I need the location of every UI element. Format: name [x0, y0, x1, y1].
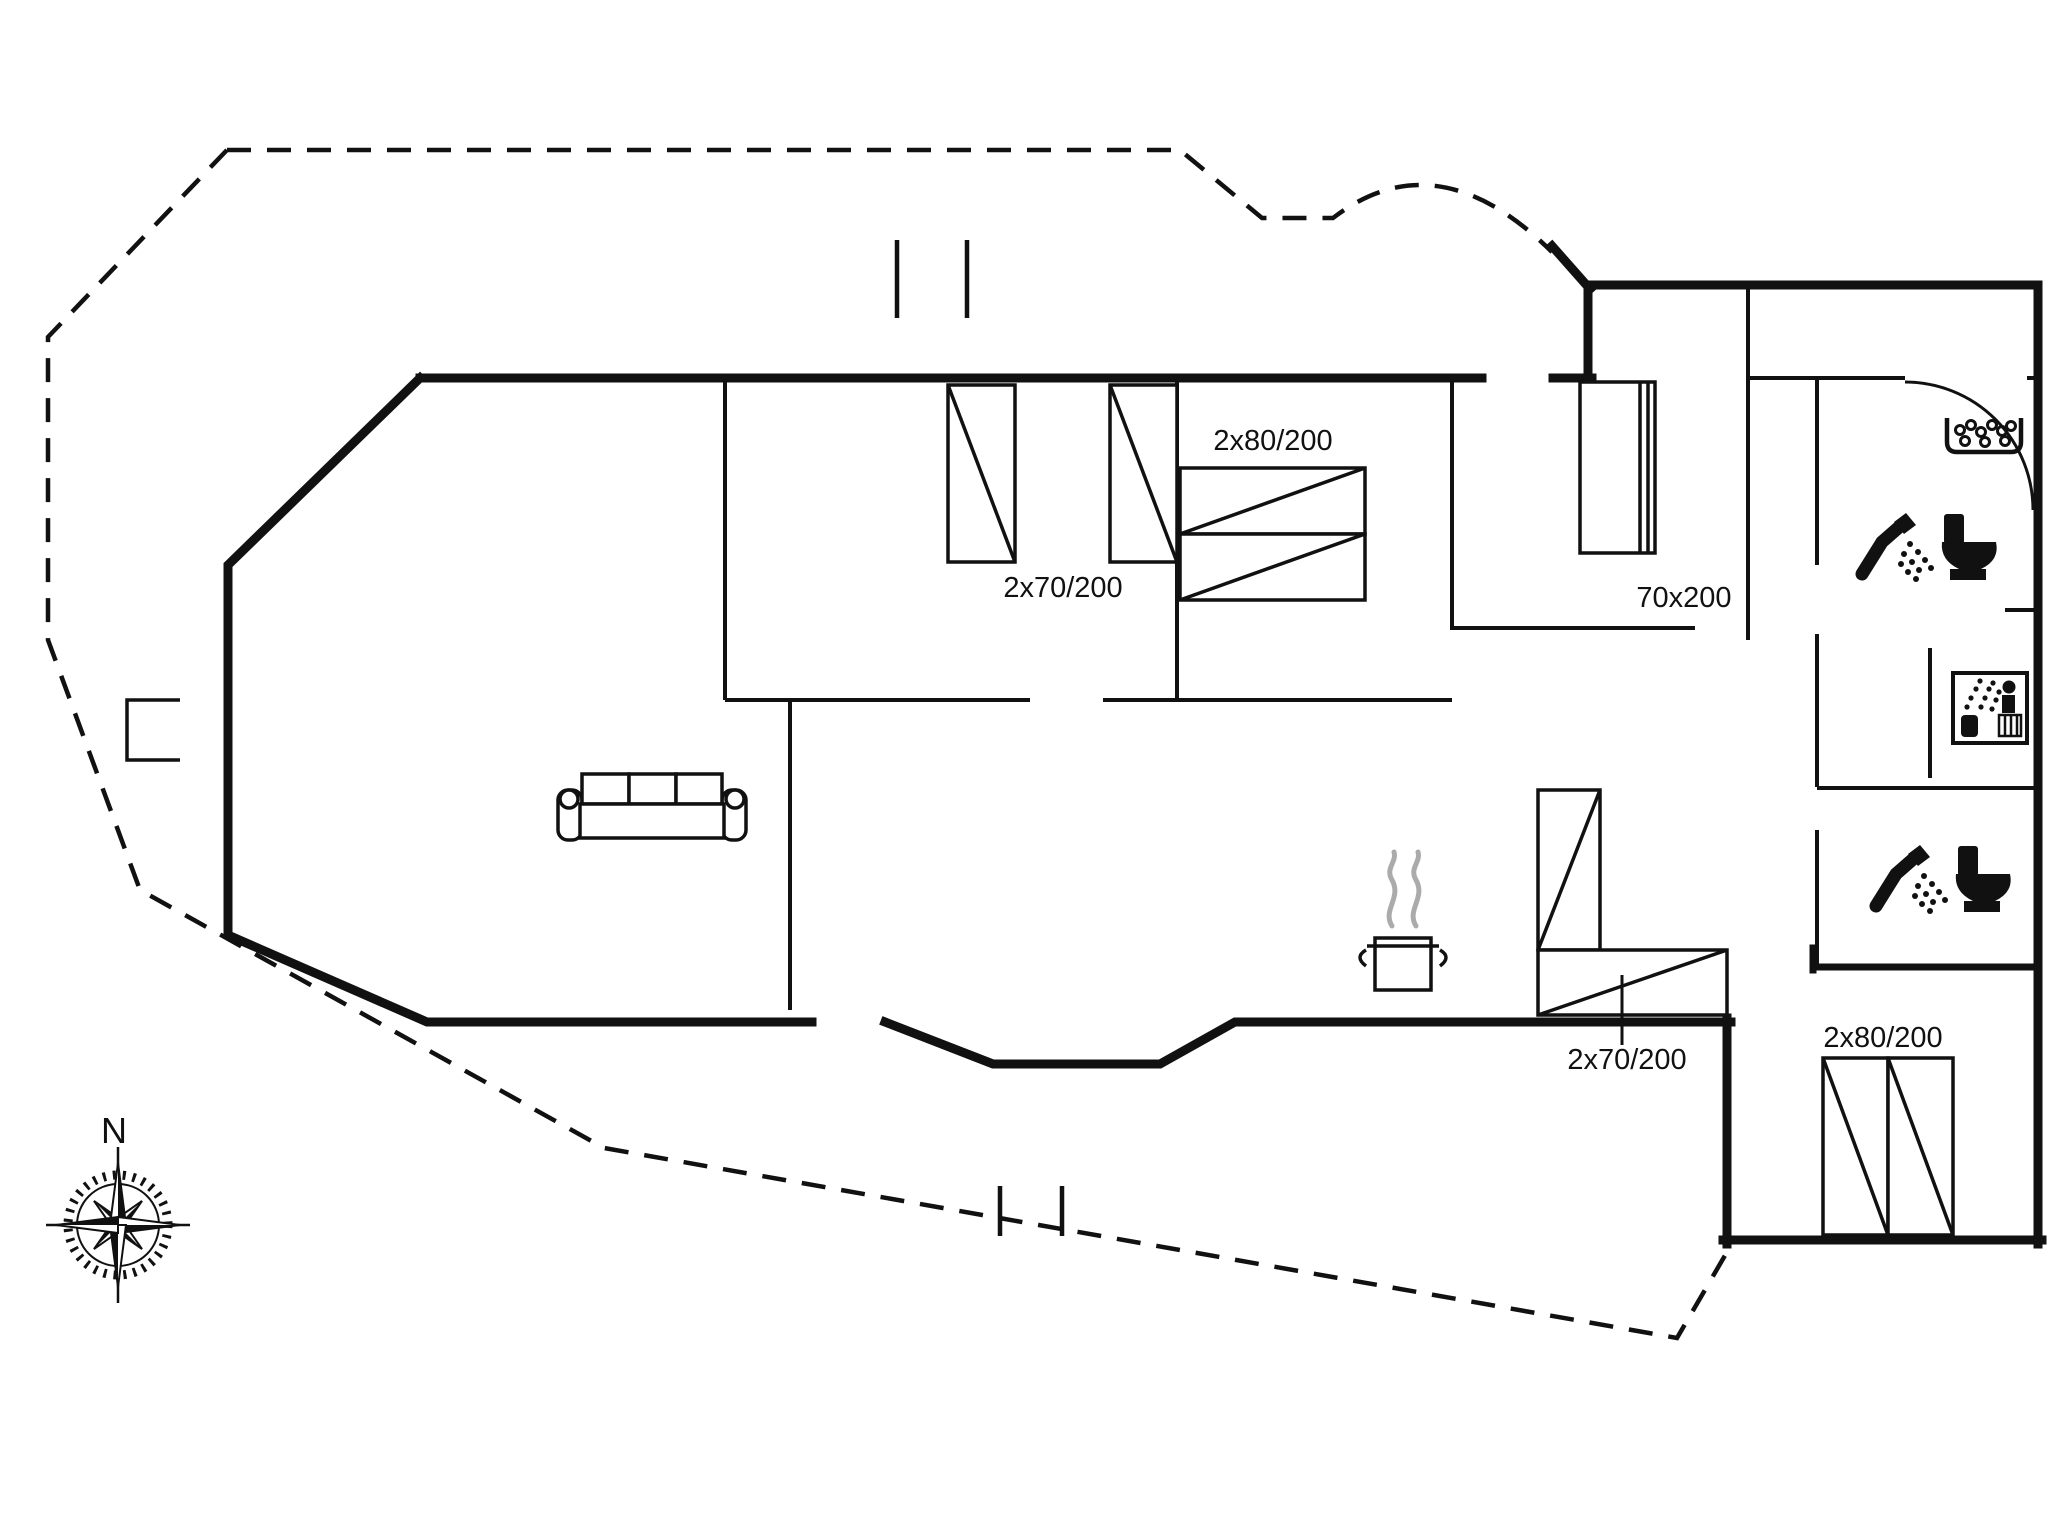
sauna-icon [1953, 673, 2027, 743]
wall-bunkroom-top [1813, 948, 2038, 970]
terrace-dashed-top [227, 150, 1552, 252]
door-swing-icon [1905, 382, 2033, 510]
sofa-seat [580, 804, 724, 838]
shower-toilet-icon [1862, 513, 1997, 582]
label-bunkroom-bed: 2x80/200 [1823, 1022, 1942, 1054]
label-kitchen-bunk: 2x70/200 [1567, 1044, 1686, 1076]
sofa-arm-scroll [560, 790, 578, 808]
label-bedroom1-beds: 2x70/200 [1003, 572, 1122, 604]
bedroom1-beds [948, 385, 1177, 562]
bunkroom-beds [1823, 1058, 1953, 1235]
sink-bubbles [1956, 421, 2016, 447]
sofa-icon [558, 774, 746, 840]
label-entry-bed: 70x200 [1636, 582, 1731, 614]
terrace-outline [48, 150, 1727, 1338]
terrace-dashed-left-bottom [48, 150, 1727, 1338]
compass-star [56, 1163, 180, 1287]
bedroom2-double-bed [1180, 468, 1365, 600]
kitchen-stove-group [1360, 852, 1446, 990]
floor-plan-canvas: N 2x80/200 2x70/200 70x200 2x70/200 2x80… [0, 0, 2048, 1536]
sofa-cushion [629, 774, 676, 804]
shower-toilet-icon [1876, 845, 2011, 914]
label-bedroom2-bed: 2x80/200 [1213, 425, 1332, 457]
sofa-arm-scroll [726, 790, 744, 808]
sofa-cushion [676, 774, 722, 804]
sauna-stove [1961, 715, 1978, 737]
bed-symbol [1580, 382, 1655, 553]
wall-wing-corner-stub [1552, 246, 1590, 289]
compass-rose-icon: N [46, 1110, 190, 1303]
floor-plan-svg: N 2x80/200 2x70/200 70x200 2x70/200 2x80… [0, 0, 2048, 1536]
sauna-steam-dots [1964, 678, 2001, 711]
window-mark-icon-top [897, 240, 967, 318]
entry-single-bed [1580, 382, 1655, 553]
steam-icon [1413, 852, 1419, 926]
sauna-person [1999, 681, 2021, 737]
terrace-structure [127, 700, 180, 760]
kitchen-bunk-beds [1538, 790, 1727, 1045]
compass-north-label: N [101, 1110, 127, 1151]
sofa-cushion [582, 774, 629, 804]
steam-icon [1389, 852, 1395, 926]
interior-walls [725, 289, 2038, 1010]
